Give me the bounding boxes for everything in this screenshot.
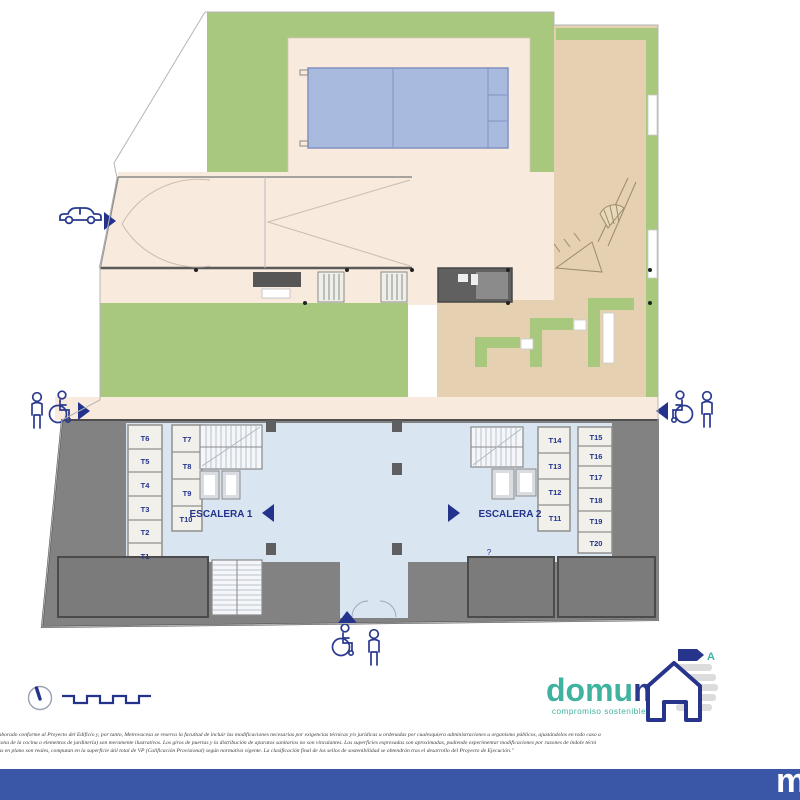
storage-block-d	[578, 427, 612, 553]
storage-label-t12: T12	[549, 488, 562, 497]
storage-label-t2: T2	[141, 528, 150, 537]
storage-label-t11: T11	[549, 514, 562, 523]
disclaimer-line-2: en la zona de la cocina o elementos de j…	[0, 740, 800, 746]
commercial-room	[558, 557, 655, 617]
stepped-line-symbol	[62, 696, 151, 703]
pool-pavilion	[438, 268, 512, 302]
storage-label-t14: T14	[549, 436, 563, 445]
commercial-room	[58, 557, 208, 617]
storage-label-t4: T4	[141, 481, 151, 490]
energy-arrow-icon	[678, 649, 704, 661]
garden-pool-area	[207, 12, 554, 178]
metrovacesa-mark: m	[776, 769, 800, 800]
escalera2-label: ESCALERA 2	[479, 509, 542, 520]
person-icon	[32, 393, 42, 428]
wheelchair-icon	[672, 391, 693, 422]
logo-tagline: compromiso sostenible	[546, 707, 652, 716]
person-icon	[369, 630, 379, 665]
car-icon	[60, 208, 101, 223]
storage-label-t13: T13	[549, 462, 562, 471]
bike-rack	[381, 272, 407, 302]
bench	[603, 313, 614, 363]
storage-label-t7: T7	[183, 435, 192, 444]
bench	[521, 339, 533, 349]
bike-rack	[318, 272, 344, 302]
bench	[648, 95, 657, 135]
lawn	[100, 303, 408, 400]
storage-label-t5: T5	[141, 457, 150, 466]
storage-label-t20: T20	[590, 539, 603, 548]
bench-table	[253, 272, 301, 287]
house-outline	[648, 663, 700, 720]
clock-icon	[29, 687, 52, 710]
escalera1-label: ESCALERA 1	[190, 509, 253, 520]
logo-part1: domu	[546, 672, 633, 708]
storage-label-t8: T8	[183, 462, 192, 471]
energy-rating-letter: A	[707, 651, 715, 663]
domum-logo: domum compromiso sostenible A	[546, 674, 726, 724]
commercial-room	[468, 557, 554, 617]
swimming-pool	[300, 68, 508, 148]
storage-label-t1: T1	[141, 552, 150, 561]
floor-plan: ESCALERA 1 ESCALERA 2 T1 T2 T3 T4 T5 T6 …	[0, 0, 800, 730]
bench	[574, 320, 586, 330]
storage-label-t17: T17	[590, 473, 603, 482]
stairwell-bottom	[212, 560, 262, 615]
storage-label-t10: T10	[180, 515, 193, 524]
footer-brand-bar: m	[0, 769, 800, 800]
storage-label-t16: T16	[590, 452, 603, 461]
person-icon	[702, 392, 712, 427]
disclaimer-line-1: ido elaborado conforme al Proyecto del E…	[0, 732, 800, 738]
misc-question-label: ?	[487, 548, 492, 557]
pedestrian-entrance-right	[656, 391, 712, 427]
storage-label-t19: T19	[590, 517, 603, 526]
walkway	[55, 397, 658, 420]
disclaimer-line-3: dejadas en plano son reales, computan en…	[0, 748, 800, 754]
storage-label-t18: T18	[590, 496, 603, 505]
energy-house-icon: A	[640, 648, 724, 724]
storage-block-a	[128, 425, 162, 567]
storage-label-t6: T6	[141, 434, 150, 443]
storage-label-t9: T9	[183, 489, 192, 498]
entrance-vestibule	[340, 556, 408, 618]
storage-label-t3: T3	[141, 505, 150, 514]
building-ground-floor: ESCALERA 1 ESCALERA 2 T1 T2 T3 T4 T5 T6 …	[42, 420, 658, 627]
wheelchair-icon	[333, 624, 354, 655]
storage-label-t15: T15	[590, 433, 603, 442]
